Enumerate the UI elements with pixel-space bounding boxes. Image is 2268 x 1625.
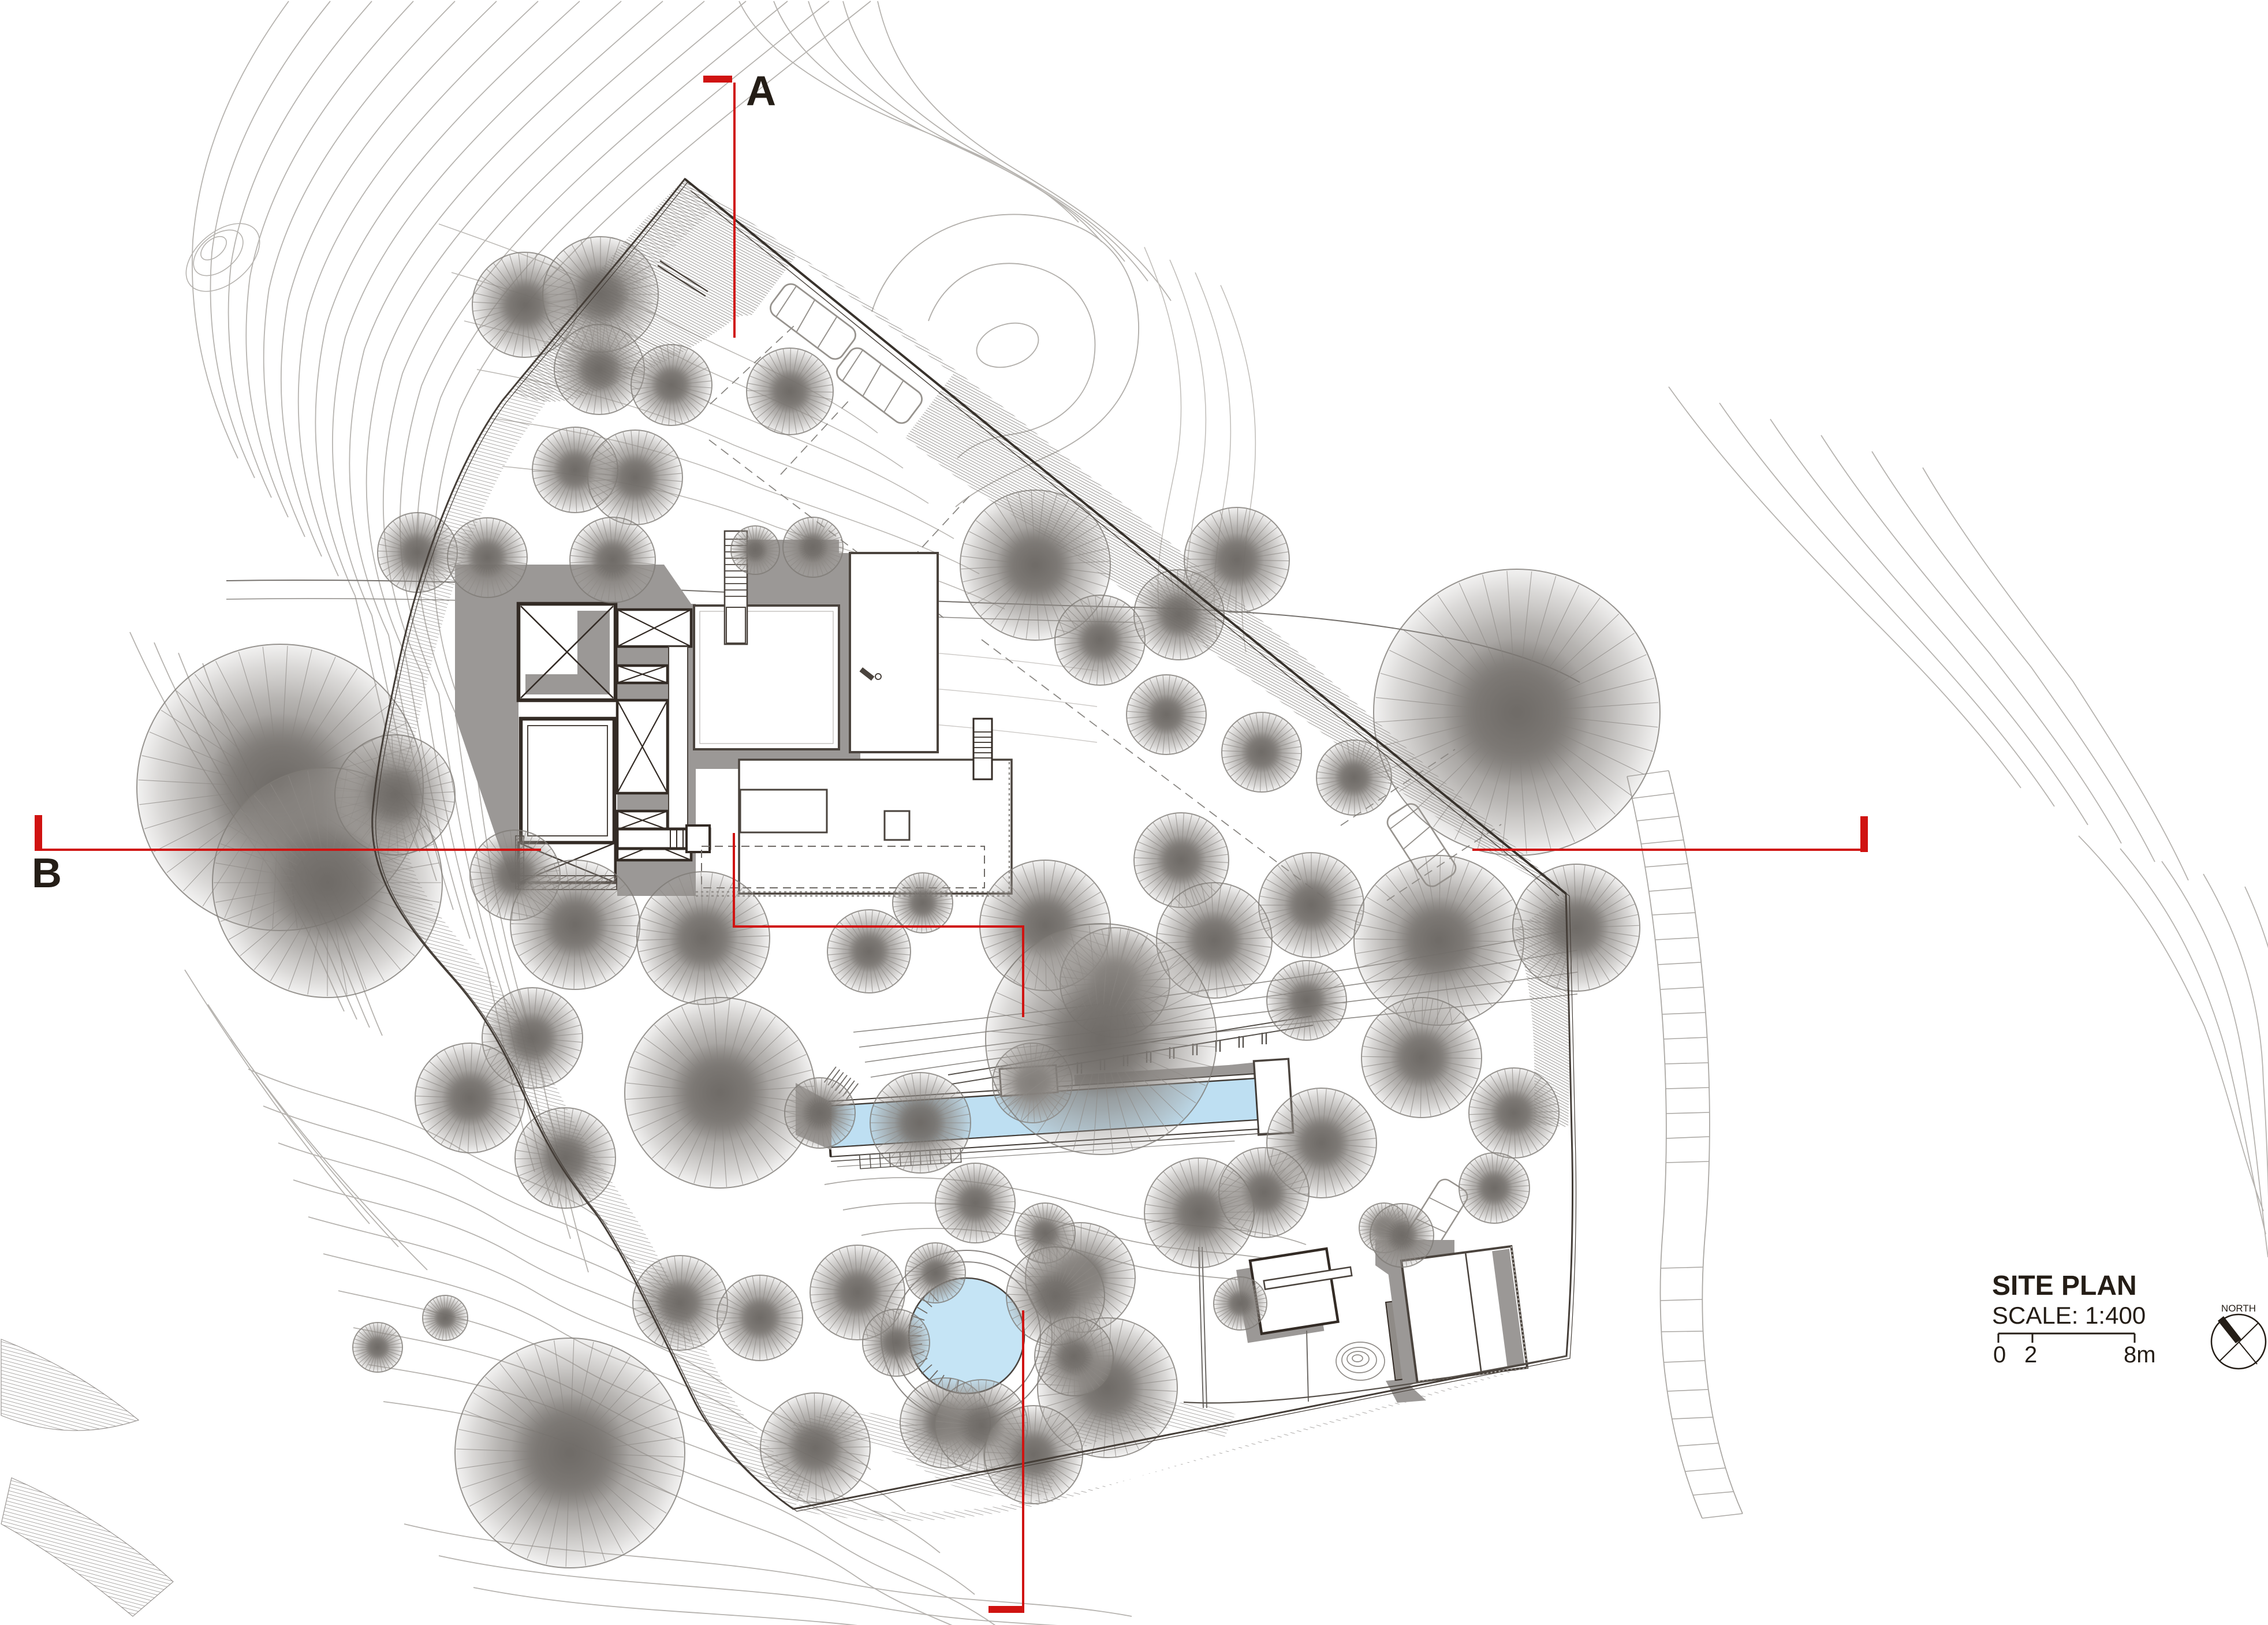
svg-text:SCALE: 1:400: SCALE: 1:400 [1992,1302,2146,1329]
svg-text:B: B [32,850,62,896]
svg-text:NORTH: NORTH [2221,1303,2256,1314]
svg-text:0: 0 [1993,1342,2006,1368]
svg-text:8m: 8m [2124,1342,2156,1368]
svg-text:A: A [746,68,776,114]
svg-text:SITE PLAN: SITE PLAN [1992,1271,2137,1301]
svg-text:2: 2 [2024,1342,2037,1368]
